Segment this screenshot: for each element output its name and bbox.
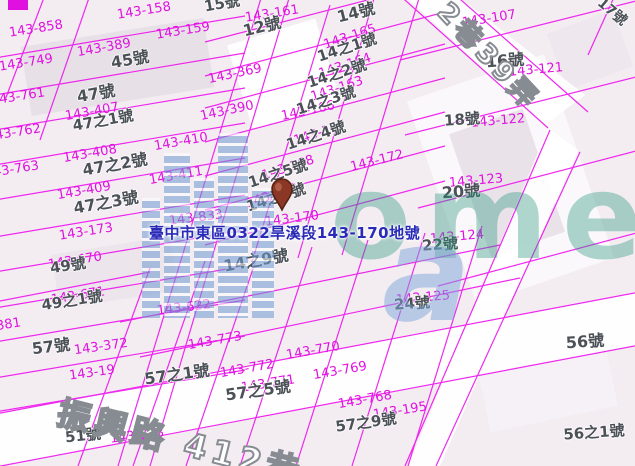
house-number-label: 20號 <box>441 183 480 202</box>
location-pin-icon <box>268 178 296 212</box>
cadastral-map[interactable]: 143-158143-159143-161143-858143-389143-7… <box>0 0 635 466</box>
house-number-label: 22號 <box>422 236 459 253</box>
map-corner-marker <box>8 0 28 10</box>
house-number-label: 18號 <box>444 111 481 128</box>
house-number-label: 57號 <box>31 337 71 358</box>
house-number-label: 56號 <box>565 333 604 352</box>
parcel-info-label: 臺中市東區0322旱溪段143-170地號 <box>149 224 420 242</box>
house-number-label: 24號 <box>394 295 431 312</box>
house-number-label: 56之1號 <box>563 423 625 442</box>
